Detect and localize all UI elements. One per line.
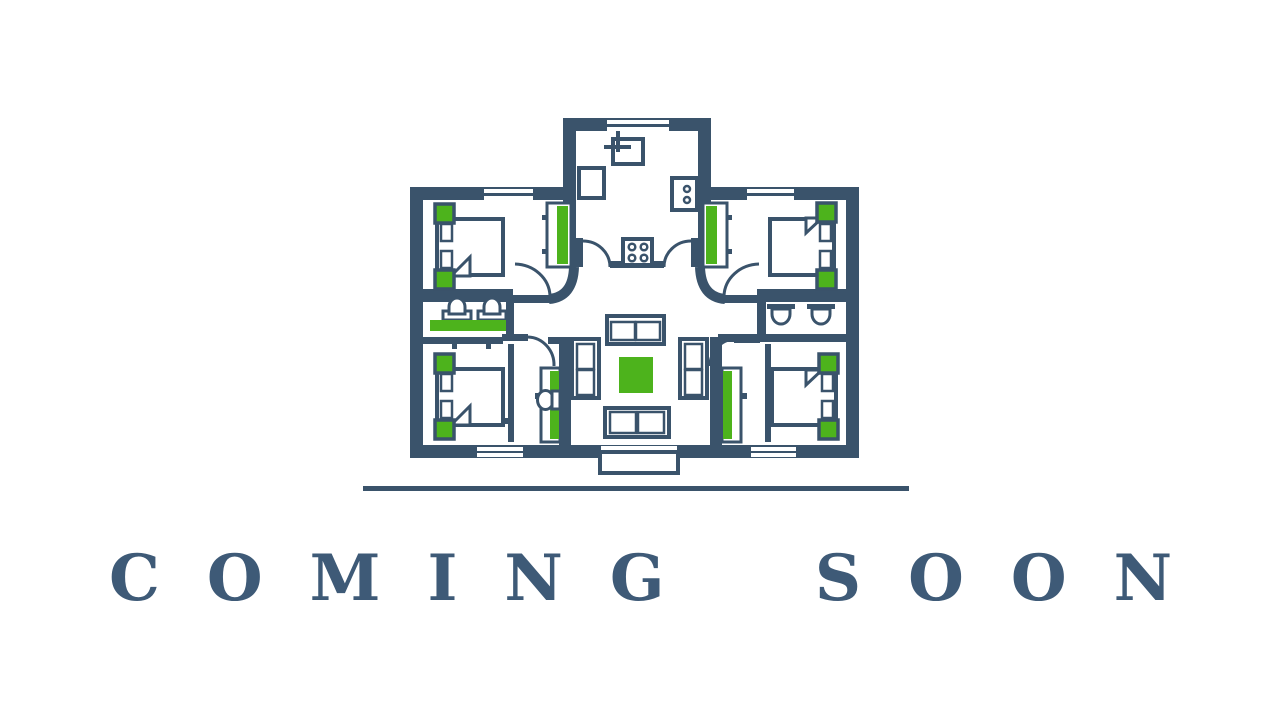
- nightstand-icon: [819, 420, 838, 439]
- counter-icon: [579, 168, 604, 198]
- bedroom-bottom-left: [435, 354, 503, 439]
- door-arc-icon: [723, 264, 761, 303]
- sofa-icon: [607, 316, 664, 344]
- nightstand-icon: [819, 354, 838, 373]
- nightstand-icon: [817, 203, 836, 222]
- wardrobe-icon: [542, 203, 571, 267]
- nightstand-icon: [435, 354, 454, 373]
- bedroom-top-right: [703, 203, 836, 289]
- armchair-icon: [572, 339, 599, 398]
- bed-icon: [437, 219, 503, 276]
- vanity-counter: [430, 320, 506, 331]
- nightstand-icon: [435, 270, 454, 289]
- rug-icon: [619, 357, 653, 393]
- divider-line: [363, 486, 909, 491]
- fridge-icon: [672, 178, 697, 210]
- coming-soon-splash: COMING SOON: [0, 0, 1280, 720]
- bed-icon: [770, 218, 834, 275]
- toilet-icon: [538, 391, 561, 410]
- stove-icon: [623, 239, 652, 265]
- bedroom-top-left: [435, 203, 571, 289]
- bathroom-sink-icon: [767, 304, 835, 324]
- bedroom-bottom-right: [772, 354, 838, 439]
- coming-soon-heading: COMING SOON: [24, 541, 1280, 611]
- curved-wall: [549, 267, 574, 299]
- armchair-icon: [680, 339, 707, 398]
- living-room: [549, 267, 725, 437]
- bed-icon: [437, 369, 503, 425]
- kitchen-sink-icon: [604, 131, 643, 164]
- curved-wall: [700, 267, 725, 299]
- nightstand-icon: [435, 204, 454, 223]
- nightstand-icon: [435, 420, 454, 439]
- nightstand-icon: [817, 270, 836, 289]
- bed-icon: [772, 369, 836, 425]
- door-arc-icon: [512, 264, 550, 303]
- sofa-icon: [605, 408, 669, 437]
- vanity-icon: [722, 368, 747, 442]
- entrance-step-icon: [600, 446, 678, 473]
- kitchen: [576, 131, 698, 267]
- wardrobe-icon: [703, 203, 732, 267]
